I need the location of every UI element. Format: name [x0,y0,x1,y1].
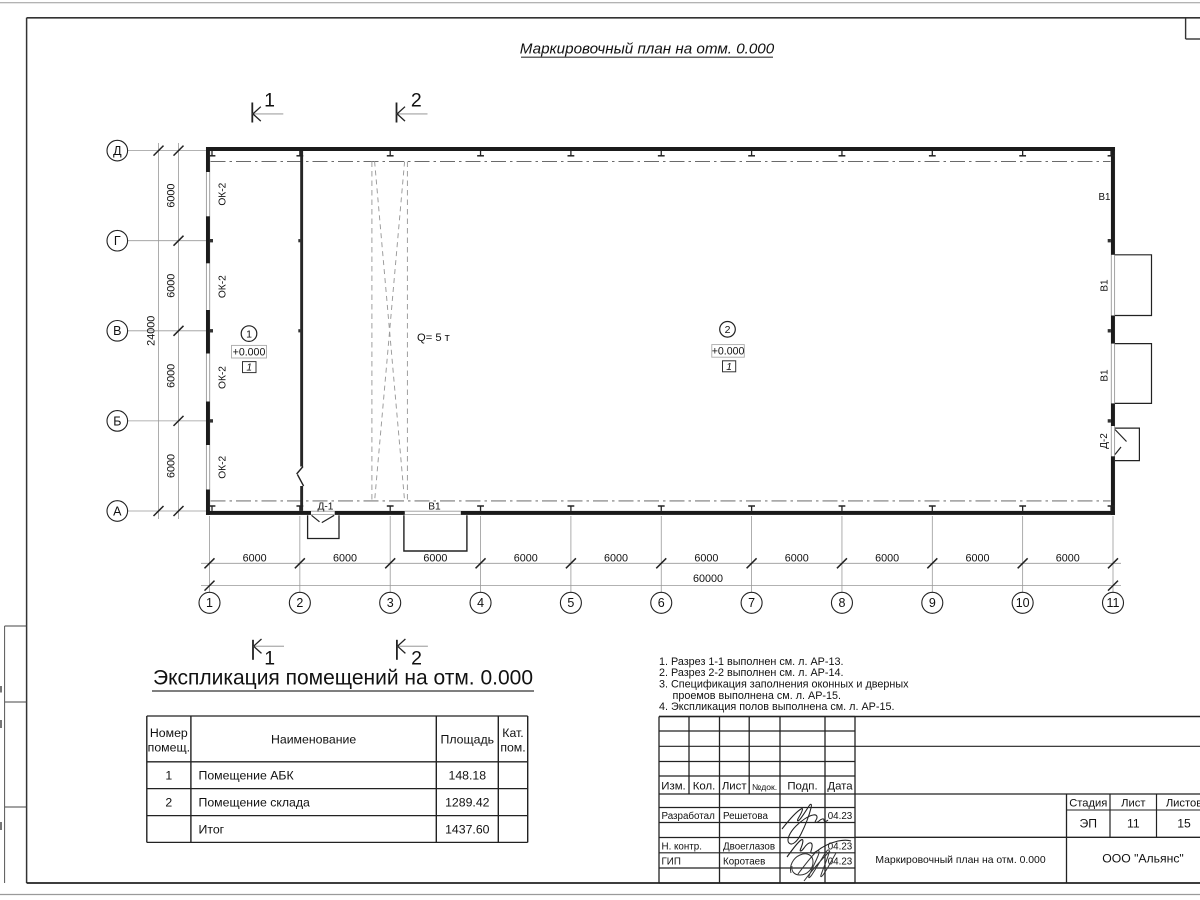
svg-text:15: 15 [1177,817,1191,831]
svg-text:Итог: Итог [199,822,225,836]
svg-text:пом.: пом. [500,741,525,755]
svg-text:1: 1 [246,328,252,340]
svg-text:1: 1 [206,596,213,610]
svg-text:6000: 6000 [875,552,899,564]
svg-text:3. Спецификация заполнения око: 3. Спецификация заполнения оконных и две… [659,679,909,691]
svg-text:ОК-2: ОК-2 [218,275,229,298]
svg-text:Лист: Лист [722,780,748,792]
svg-text:11: 11 [1127,817,1140,831]
svg-text:3: 3 [387,596,394,610]
svg-text:6000: 6000 [166,184,178,208]
svg-text:Номер: Номер [150,726,188,740]
svg-text:ОК-2: ОК-2 [218,182,229,205]
svg-text:проемов выполнена см. л. АР-15: проемов выполнена см. л. АР-15. [673,690,842,702]
svg-text:Д: Д [113,144,122,158]
svg-text:Помещение АБК: Помещение АБК [199,769,295,783]
svg-text:Маркировочный план на отм. 0.0: Маркировочный план на отм. 0.000 [520,41,775,58]
svg-text:Разработал: Разработал [662,811,716,822]
svg-text:Площадь: Площадь [441,733,495,747]
svg-text:В1: В1 [428,502,441,513]
svg-text:А: А [113,504,122,518]
svg-text:ОК-2: ОК-2 [218,456,229,479]
svg-text:1. Разрез 1-1 выполнен см. л.: 1. Разрез 1-1 выполнен см. л. АР-13. [659,656,843,668]
svg-text:04.23: 04.23 [828,811,853,822]
svg-text:ОК-2: ОК-2 [218,366,229,389]
svg-text:7: 7 [748,596,755,610]
svg-text:1: 1 [726,362,732,373]
svg-text:Стадия: Стадия [1069,797,1107,809]
svg-text:1: 1 [165,769,172,783]
svg-text:8: 8 [838,596,845,610]
svg-text:Q= 5 т: Q= 5 т [417,332,450,344]
svg-text:ГИП: ГИП [662,856,681,867]
svg-text:Двоеглазов: Двоеглазов [723,841,775,852]
svg-text:Экспликация помещений на отм.: Экспликация помещений на отм. 0.000 [153,667,533,690]
svg-text:4. Экспликация полов выполнена: 4. Экспликация полов выполнена см. л. АР… [659,701,894,713]
svg-text:Г: Г [114,234,121,248]
svg-text:1437.60: 1437.60 [445,822,490,836]
svg-text:6000: 6000 [1056,552,1080,564]
svg-text:6000: 6000 [694,552,718,564]
svg-text:11: 11 [1107,596,1120,610]
svg-text:В1: В1 [1100,369,1111,382]
svg-text:В1: В1 [1100,279,1111,292]
svg-text:60000: 60000 [693,573,723,585]
svg-text:6000: 6000 [604,552,628,564]
svg-text:№док.: №док. [752,782,777,792]
svg-text:2: 2 [411,89,422,111]
svg-text:2: 2 [165,795,172,809]
svg-text:6000: 6000 [423,552,447,564]
svg-text:6000: 6000 [514,552,538,564]
svg-text:6000: 6000 [785,552,809,564]
svg-text:6: 6 [658,596,665,610]
svg-text:148.18: 148.18 [448,769,486,783]
svg-text:Помещение склада: Помещение склада [199,795,311,809]
svg-text:6000: 6000 [166,274,178,298]
svg-text:Изм.: Изм. [661,780,685,792]
svg-text:Кат.: Кат. [502,726,523,740]
svg-text:2: 2 [296,596,303,610]
svg-text:Д-2: Д-2 [1099,433,1110,449]
svg-text:6000: 6000 [166,454,178,478]
svg-text:Листов: Листов [1166,797,1200,809]
svg-text:+0.000: +0.000 [712,346,745,358]
svg-text:Наименование: Наименование [271,733,356,747]
svg-text:В1: В1 [1099,192,1111,203]
svg-text:6000: 6000 [965,552,989,564]
svg-text:помещ.: помещ. [148,741,190,755]
svg-text:Б: Б [113,414,121,428]
svg-text:Подп.: Подп. [787,780,817,792]
svg-text:4: 4 [477,596,484,610]
svg-text:6000: 6000 [333,552,357,564]
svg-text:+0.000: +0.000 [233,346,266,358]
svg-text:Лист: Лист [1121,797,1145,809]
svg-text:1: 1 [246,363,252,374]
svg-text:Дата: Дата [827,780,853,792]
svg-text:1289.42: 1289.42 [445,795,490,809]
svg-text:2: 2 [725,324,731,336]
svg-text:Решетова: Решетова [723,811,768,822]
svg-text:В: В [113,324,121,338]
svg-text:Д-1: Д-1 [318,502,334,513]
svg-text:1: 1 [264,89,275,111]
svg-text:6000: 6000 [166,364,178,388]
svg-text:Коротаев: Коротаев [723,856,765,867]
svg-text:6000: 6000 [243,552,267,564]
svg-text:ЭП: ЭП [1080,817,1098,831]
svg-text:2. Разрез 2-2 выполнен см. л.: 2. Разрез 2-2 выполнен см. л. АР-14. [659,667,843,679]
svg-text:10: 10 [1016,596,1030,610]
svg-text:Маркировочный план на отм. 0.0: Маркировочный план на отм. 0.000 [875,855,1045,866]
svg-text:5: 5 [567,596,574,610]
svg-text:24000: 24000 [146,316,158,346]
svg-text:Кол.: Кол. [693,780,716,792]
svg-text:Н. контр.: Н. контр. [662,841,702,852]
svg-text:9: 9 [929,596,936,610]
svg-text:ООО "Альянс": ООО "Альянс" [1102,852,1184,866]
